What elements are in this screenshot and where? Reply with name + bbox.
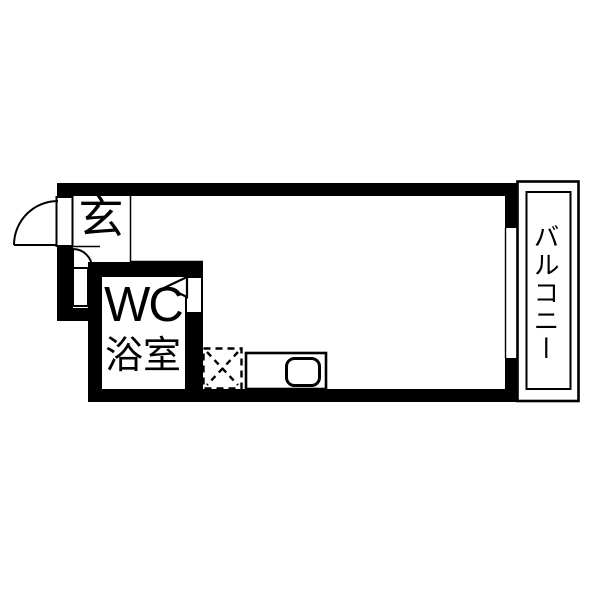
interior-door-leaf bbox=[73, 268, 88, 306]
wc-bathroom-label-block: WC 浴室 bbox=[101, 279, 185, 381]
entrance-door-leaf bbox=[57, 197, 73, 246]
kitchen-sink-icon bbox=[287, 359, 320, 386]
balcony-label: バルコニー bbox=[532, 223, 564, 383]
bathroom-label: 浴室 bbox=[101, 332, 185, 381]
right-wall-upper bbox=[505, 183, 518, 228]
wc-label: WC bbox=[101, 279, 185, 332]
floor-plan-drawing bbox=[0, 0, 600, 600]
wc-left-wall bbox=[88, 262, 102, 402]
wc-door-opening bbox=[186, 277, 202, 313]
entrance-label: 玄 bbox=[72, 194, 130, 242]
floor-plan: 玄 WC 浴室 バルコニー bbox=[0, 0, 600, 600]
entrance-door-arc-icon bbox=[14, 201, 58, 245]
bottom-wall bbox=[88, 389, 518, 402]
